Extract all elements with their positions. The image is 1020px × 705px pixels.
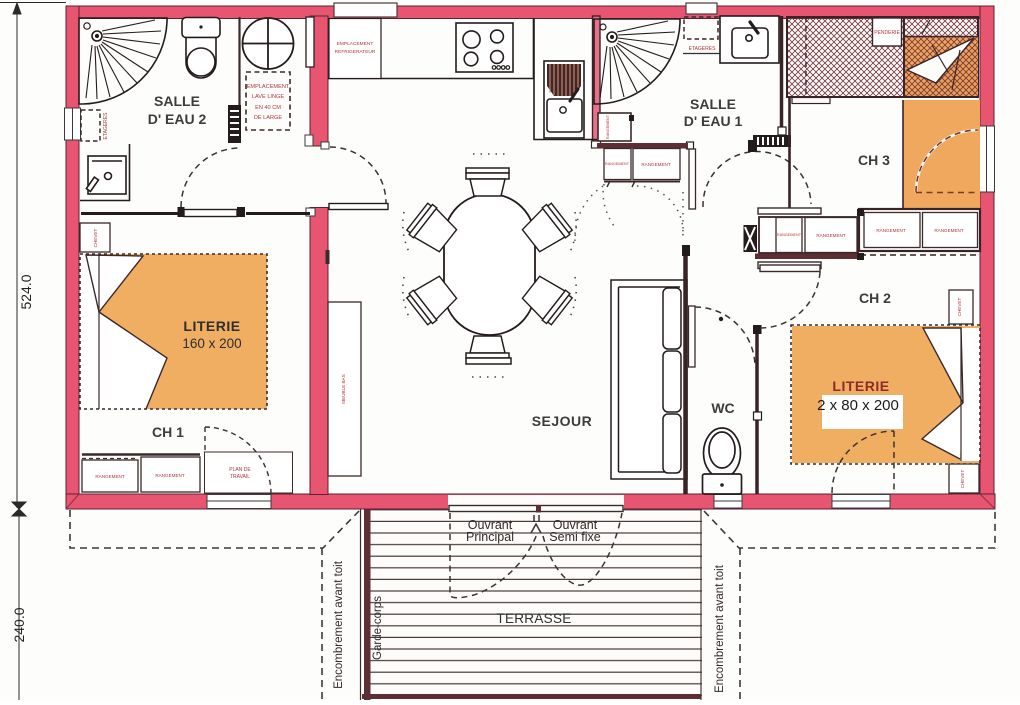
- svg-text:RANGEMENT: RANGEMENT: [816, 233, 846, 238]
- svg-text:SALLE: SALLE: [154, 93, 200, 109]
- svg-text:RANGEMENT: RANGEMENT: [934, 228, 964, 233]
- svg-text:D' EAU 1: D' EAU 1: [684, 113, 743, 129]
- svg-text:RANGEMENT: RANGEMENT: [777, 233, 802, 237]
- svg-text:EMPLACEMENT: EMPLACEMENT: [247, 84, 290, 90]
- svg-text:DE LARGE: DE LARGE: [254, 115, 283, 121]
- svg-text:CH 1: CH 1: [152, 424, 184, 440]
- svg-text:CHEVET: CHEVET: [960, 469, 965, 488]
- svg-text:RANGEMENT: RANGEMENT: [155, 473, 185, 478]
- svg-text:ETAGERES: ETAGERES: [689, 46, 717, 52]
- svg-text:RANGEMENT: RANGEMENT: [95, 474, 125, 479]
- svg-text:REFRIGERATEUR: REFRIGERATEUR: [335, 49, 376, 55]
- svg-text:ETAGERES: ETAGERES: [103, 112, 109, 140]
- svg-text:LITERIE: LITERIE: [832, 378, 889, 394]
- svg-text:TERRASSE: TERRASSE: [496, 611, 571, 626]
- svg-text:PLAN DE: PLAN DE: [229, 467, 251, 473]
- svg-text:Encombrement avant toit: Encombrement avant toit: [333, 560, 345, 689]
- svg-text:Semi fixe: Semi fixe: [549, 530, 600, 544]
- svg-text:PENDERIE: PENDERIE: [874, 30, 900, 36]
- svg-text:160 x 200: 160 x 200: [182, 336, 241, 351]
- svg-text:RANGEMENT: RANGEMENT: [606, 114, 610, 139]
- svg-text:RANGEMENT: RANGEMENT: [605, 162, 630, 166]
- svg-text:LAVE LINGE: LAVE LINGE: [252, 94, 284, 100]
- svg-text:D' EAU 2: D' EAU 2: [148, 111, 207, 127]
- svg-text:Garde-corps: Garde-corps: [372, 596, 384, 660]
- svg-text:CHEVET: CHEVET: [93, 228, 98, 247]
- svg-text:WC: WC: [711, 400, 734, 416]
- svg-text:240.0: 240.0: [11, 607, 27, 642]
- svg-text:RANGEMENT: RANGEMENT: [876, 228, 906, 233]
- svg-text:EMPLACEMENT: EMPLACEMENT: [337, 41, 374, 47]
- svg-text:MEUBLE BAS: MEUBLE BAS: [341, 374, 346, 403]
- svg-text:CH 2: CH 2: [859, 290, 891, 306]
- svg-text:LITERIE: LITERIE: [183, 318, 240, 334]
- svg-text:RANGEMENT: RANGEMENT: [641, 162, 671, 167]
- svg-text:2 x 80 x 200: 2 x 80 x 200: [817, 397, 899, 414]
- svg-text:SALLE: SALLE: [690, 96, 736, 112]
- svg-text:SEJOUR: SEJOUR: [532, 413, 593, 429]
- svg-text:TRAVAIL: TRAVAIL: [230, 474, 250, 480]
- svg-text:CH 3: CH 3: [858, 152, 890, 168]
- svg-text:Encombrement avant toit: Encombrement avant toit: [714, 564, 726, 693]
- svg-text:Principal: Principal: [466, 530, 514, 544]
- svg-text:CHEVET: CHEVET: [957, 297, 962, 316]
- svg-text:524.0: 524.0: [18, 274, 34, 309]
- svg-text:EN 40 CM: EN 40 CM: [255, 105, 281, 111]
